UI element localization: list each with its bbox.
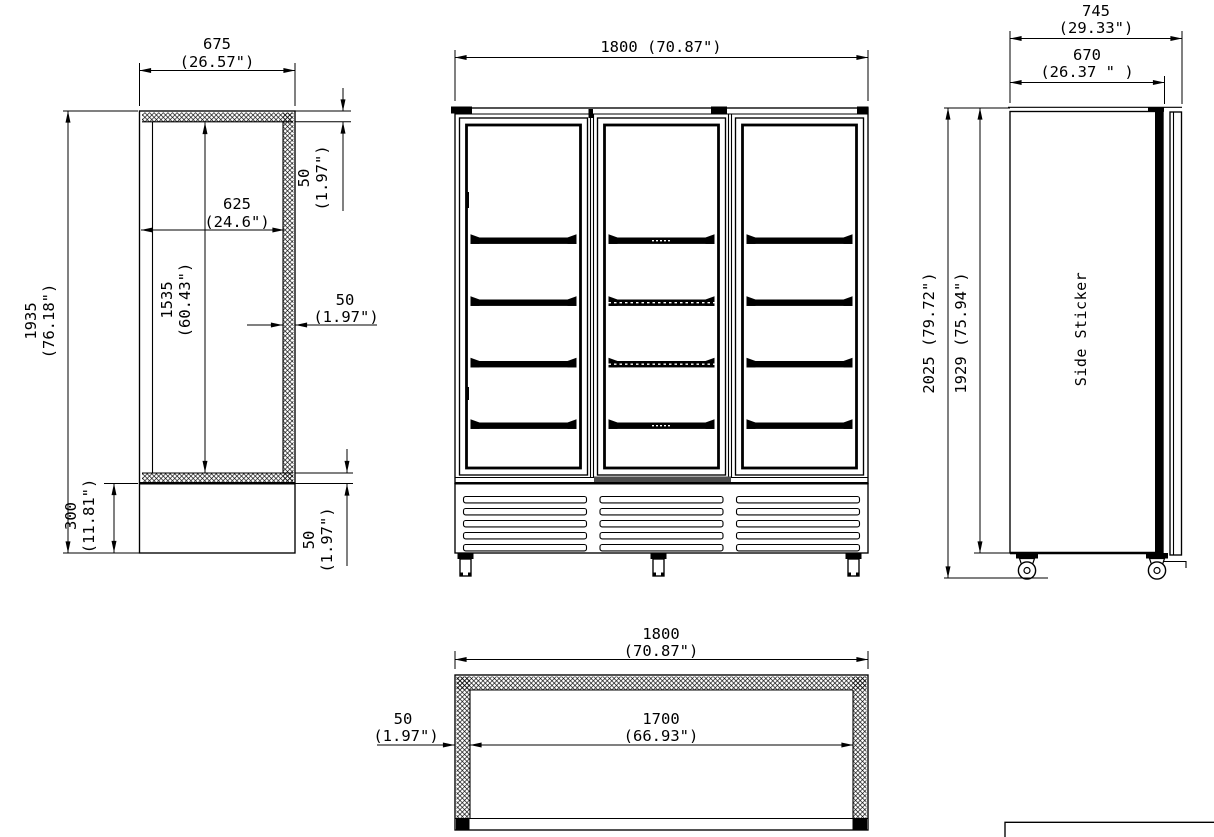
side-view: Side Sticker 745 (29.33") 670 (26.37 " )… — [920, 2, 1186, 579]
dim-section-base-height: 300 (11.81") — [62, 479, 138, 554]
dim-top-width: 1800 (70.87") — [455, 625, 868, 669]
dim-section-inner-width: 625 (24.6") — [141, 195, 284, 231]
dim-label: 1935 — [22, 302, 40, 339]
section-base — [140, 484, 296, 554]
leg — [651, 553, 667, 576]
dim-label: (66.93") — [624, 727, 699, 745]
vent-louvers — [600, 497, 723, 551]
dim-label: (26.37 " ) — [1040, 63, 1133, 81]
front-base — [455, 484, 868, 554]
hinge-block — [857, 107, 869, 114]
dim-label: (1.97") — [318, 507, 336, 572]
dim-side-height-body: 1929 (75.94") — [952, 108, 1010, 553]
side-door-profile — [1170, 112, 1182, 555]
dim-label: 675 — [203, 35, 231, 53]
glass-door-middle — [598, 118, 726, 475]
dim-top-inner-width: 1700 (66.93") — [470, 710, 853, 745]
dim-label: (11.81") — [80, 479, 98, 554]
vent-louvers — [737, 497, 860, 551]
dim-section-bottom-wall: 50 (1.97") — [295, 449, 353, 573]
dim-label: (24.6") — [204, 213, 269, 231]
glass-door-left — [460, 118, 588, 475]
dim-label: 1535 — [158, 281, 176, 318]
dim-label: 745 — [1082, 2, 1110, 20]
dim-label: 1700 — [642, 710, 679, 728]
section-view: 675 (26.57") 1935 (76.18") 625 (24.6") 1… — [22, 35, 379, 573]
section-top-insulation — [142, 113, 292, 122]
dim-section-top-wall: 50 (1.97") — [295, 88, 351, 211]
dim-label: 1800 — [642, 625, 679, 643]
dim-label: (1.97") — [313, 308, 378, 326]
dim-label: 670 — [1073, 46, 1101, 64]
leg — [846, 553, 862, 576]
section-bottom-insulation — [142, 473, 293, 482]
front-view: 1800 (70.87") — [451, 38, 869, 576]
caster-wheel — [1146, 553, 1168, 579]
dim-label: (76.18") — [40, 284, 58, 359]
dim-label: (60.43") — [176, 263, 194, 338]
dim-label: 625 — [223, 195, 251, 213]
dim-label: 300 — [62, 502, 80, 530]
section-back-insulation — [283, 113, 294, 482]
dim-label: (70.87") — [624, 642, 699, 660]
dim-section-width: 675 (26.57") — [140, 35, 296, 106]
top-view-outline — [455, 675, 868, 830]
dim-label: 1929 (75.94") — [952, 272, 970, 393]
dim-top-wall: 50 (1.97") — [373, 710, 454, 745]
title-block-corner — [1005, 822, 1214, 837]
dim-side-height-overall: 2025 (79.72") — [920, 108, 1048, 578]
dim-section-inner-height: 1535 (60.43") — [158, 123, 205, 473]
dim-label: 1800 (70.87") — [600, 38, 721, 56]
dim-label: 50 — [300, 531, 318, 550]
dim-label: 50 — [295, 169, 313, 188]
leg — [458, 553, 474, 576]
drawing-sheet: 675 (26.57") 1935 (76.18") 625 (24.6") 1… — [0, 0, 1214, 837]
kick-shadow — [594, 477, 731, 483]
hinge-block — [451, 107, 472, 114]
dim-section-back-wall: 50 (1.97") — [247, 291, 379, 326]
dim-label: (26.57") — [180, 53, 255, 71]
dim-label: (1.97") — [313, 145, 331, 210]
vent-louvers — [464, 497, 587, 551]
dim-label: (1.97") — [373, 727, 438, 745]
door-hinge-mark — [466, 192, 470, 208]
side-sticker-label: Side Sticker — [1072, 272, 1090, 386]
top-left-insulation — [457, 677, 471, 819]
side-front-face — [1155, 112, 1164, 554]
caster-wheel — [1016, 553, 1038, 579]
dim-label: 50 — [336, 291, 355, 309]
front-corner-post — [456, 819, 470, 830]
dim-label: 50 — [394, 710, 413, 728]
hinge-block — [711, 107, 727, 114]
front-corner-post — [853, 819, 868, 830]
top-right-insulation — [853, 677, 867, 819]
dim-label: 2025 (79.72") — [920, 272, 938, 393]
dim-front-width: 1800 (70.87") — [455, 38, 868, 101]
dim-side-depth-body: 670 (26.37 " ) — [1010, 46, 1165, 104]
top-view: 1800 (70.87") 1700 (66.93") 50 (1.97") — [373, 625, 868, 830]
top-back-insulation — [457, 677, 867, 690]
dim-label: (29.33") — [1059, 19, 1134, 37]
door-hinge-mark — [466, 387, 470, 400]
glass-door-right — [736, 118, 864, 475]
refrigerator-technical-drawing: 675 (26.57") 1935 (76.18") 625 (24.6") 1… — [0, 0, 1214, 837]
